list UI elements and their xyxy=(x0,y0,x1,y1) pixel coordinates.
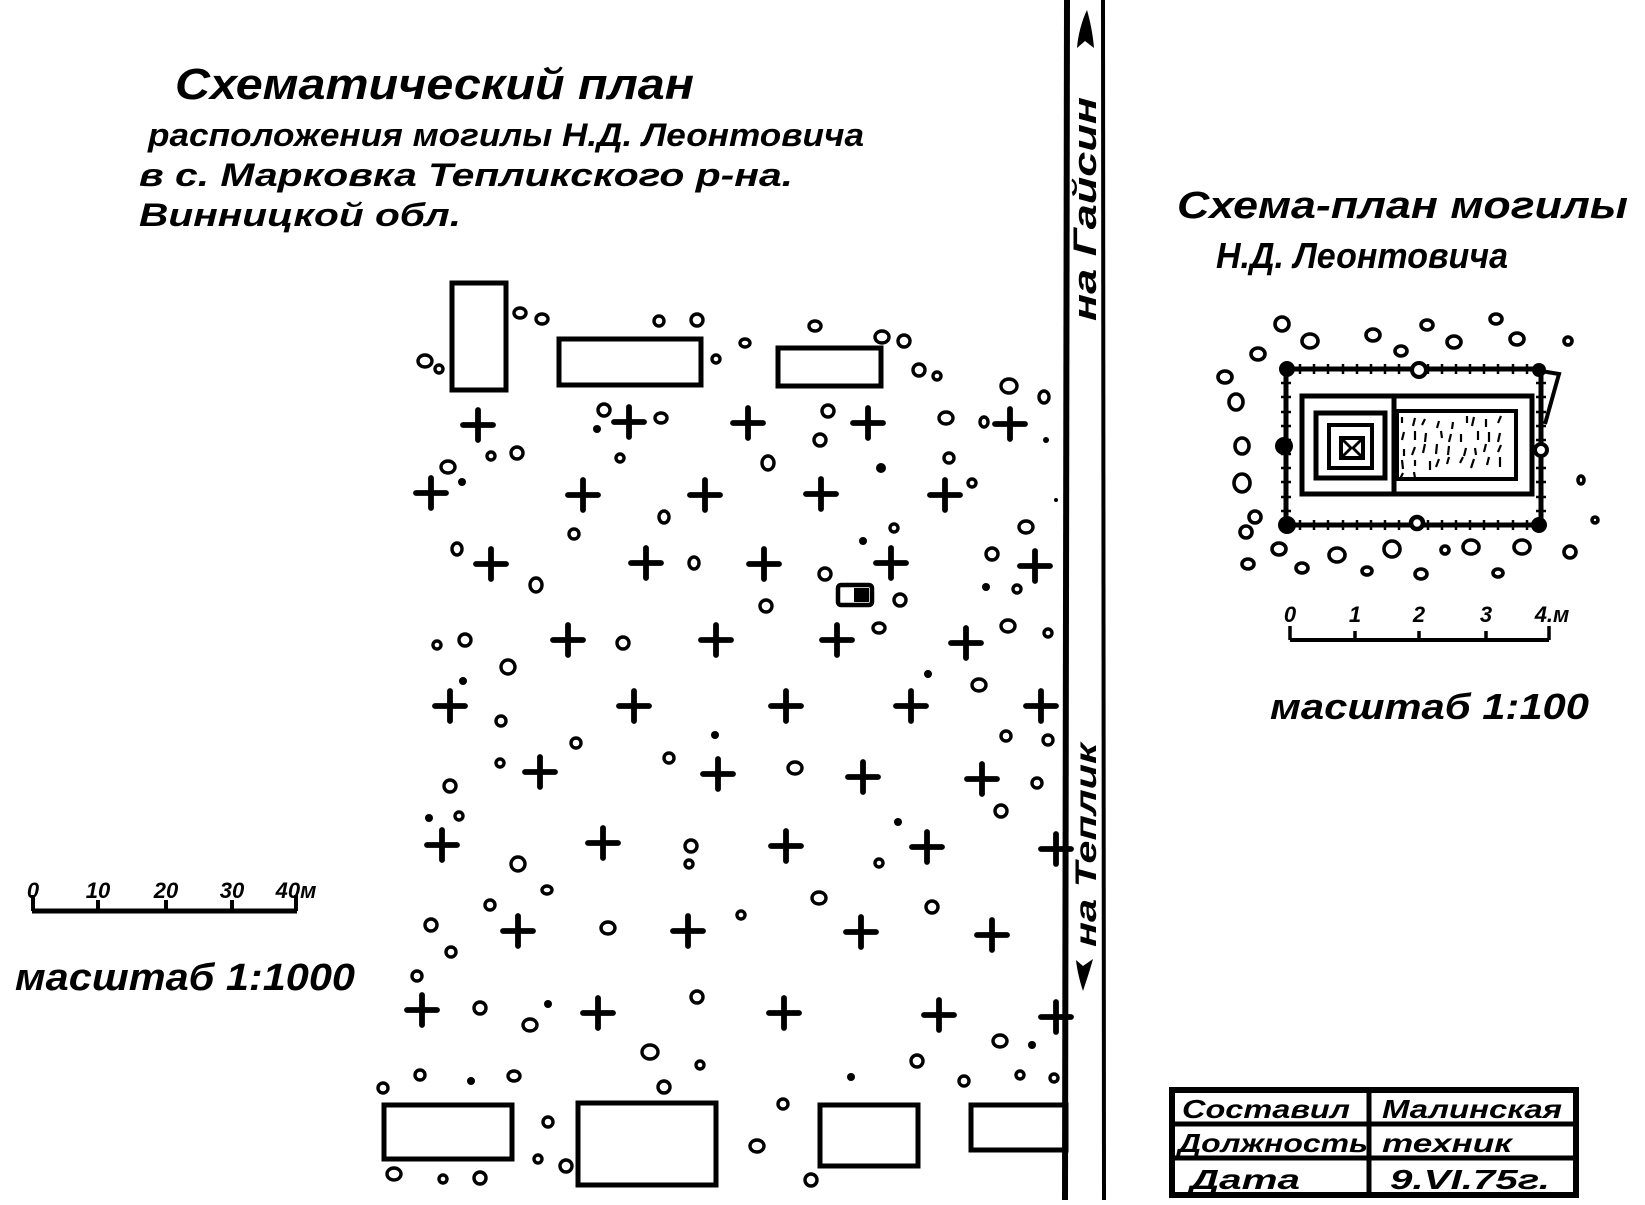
svg-text:Схема-план могилы: Схема-план могилы xyxy=(1177,185,1628,227)
svg-text:9.VI.75г.: 9.VI.75г. xyxy=(1390,1164,1550,1195)
svg-text:масштаб 1:1000: масштаб 1:1000 xyxy=(15,957,355,999)
svg-text:2: 2 xyxy=(1412,602,1426,627)
svg-text:расположения могилы Н.Д. Лео: расположения могилы Н.Д. Леонтовича xyxy=(147,117,864,153)
svg-text:масштаб 1:100: масштаб 1:100 xyxy=(1270,686,1589,727)
svg-text:1: 1 xyxy=(1349,602,1361,627)
svg-text:Малинская: Малинская xyxy=(1382,1094,1562,1124)
svg-text:20: 20 xyxy=(153,878,179,903)
svg-text:на Гайсин: на Гайсин xyxy=(1067,97,1103,321)
svg-text:Схематический план: Схематический план xyxy=(175,60,694,109)
svg-text:3: 3 xyxy=(1480,602,1492,627)
svg-text:Должность: Должность xyxy=(1176,1128,1368,1158)
svg-text:30: 30 xyxy=(220,878,245,903)
svg-text:в с. Марковка Тепликского р-: в с. Марковка Тепликского р-на. xyxy=(139,157,793,193)
svg-text:0: 0 xyxy=(27,878,40,903)
svg-text:Н.Д. Леонтовича: Н.Д. Леонтовича xyxy=(1216,235,1508,276)
svg-text:Составил: Составил xyxy=(1182,1094,1350,1124)
svg-text:40м: 40м xyxy=(275,878,317,903)
svg-text:на Теплик: на Теплик xyxy=(1070,741,1103,947)
svg-text:10: 10 xyxy=(86,878,111,903)
svg-text:Дата: Дата xyxy=(1187,1164,1300,1195)
svg-text:Винницкой обл.: Винницкой обл. xyxy=(139,197,461,233)
svg-text:0: 0 xyxy=(1284,602,1297,627)
svg-text:4.м: 4.м xyxy=(1534,602,1570,627)
svg-text:техник: техник xyxy=(1382,1128,1514,1158)
